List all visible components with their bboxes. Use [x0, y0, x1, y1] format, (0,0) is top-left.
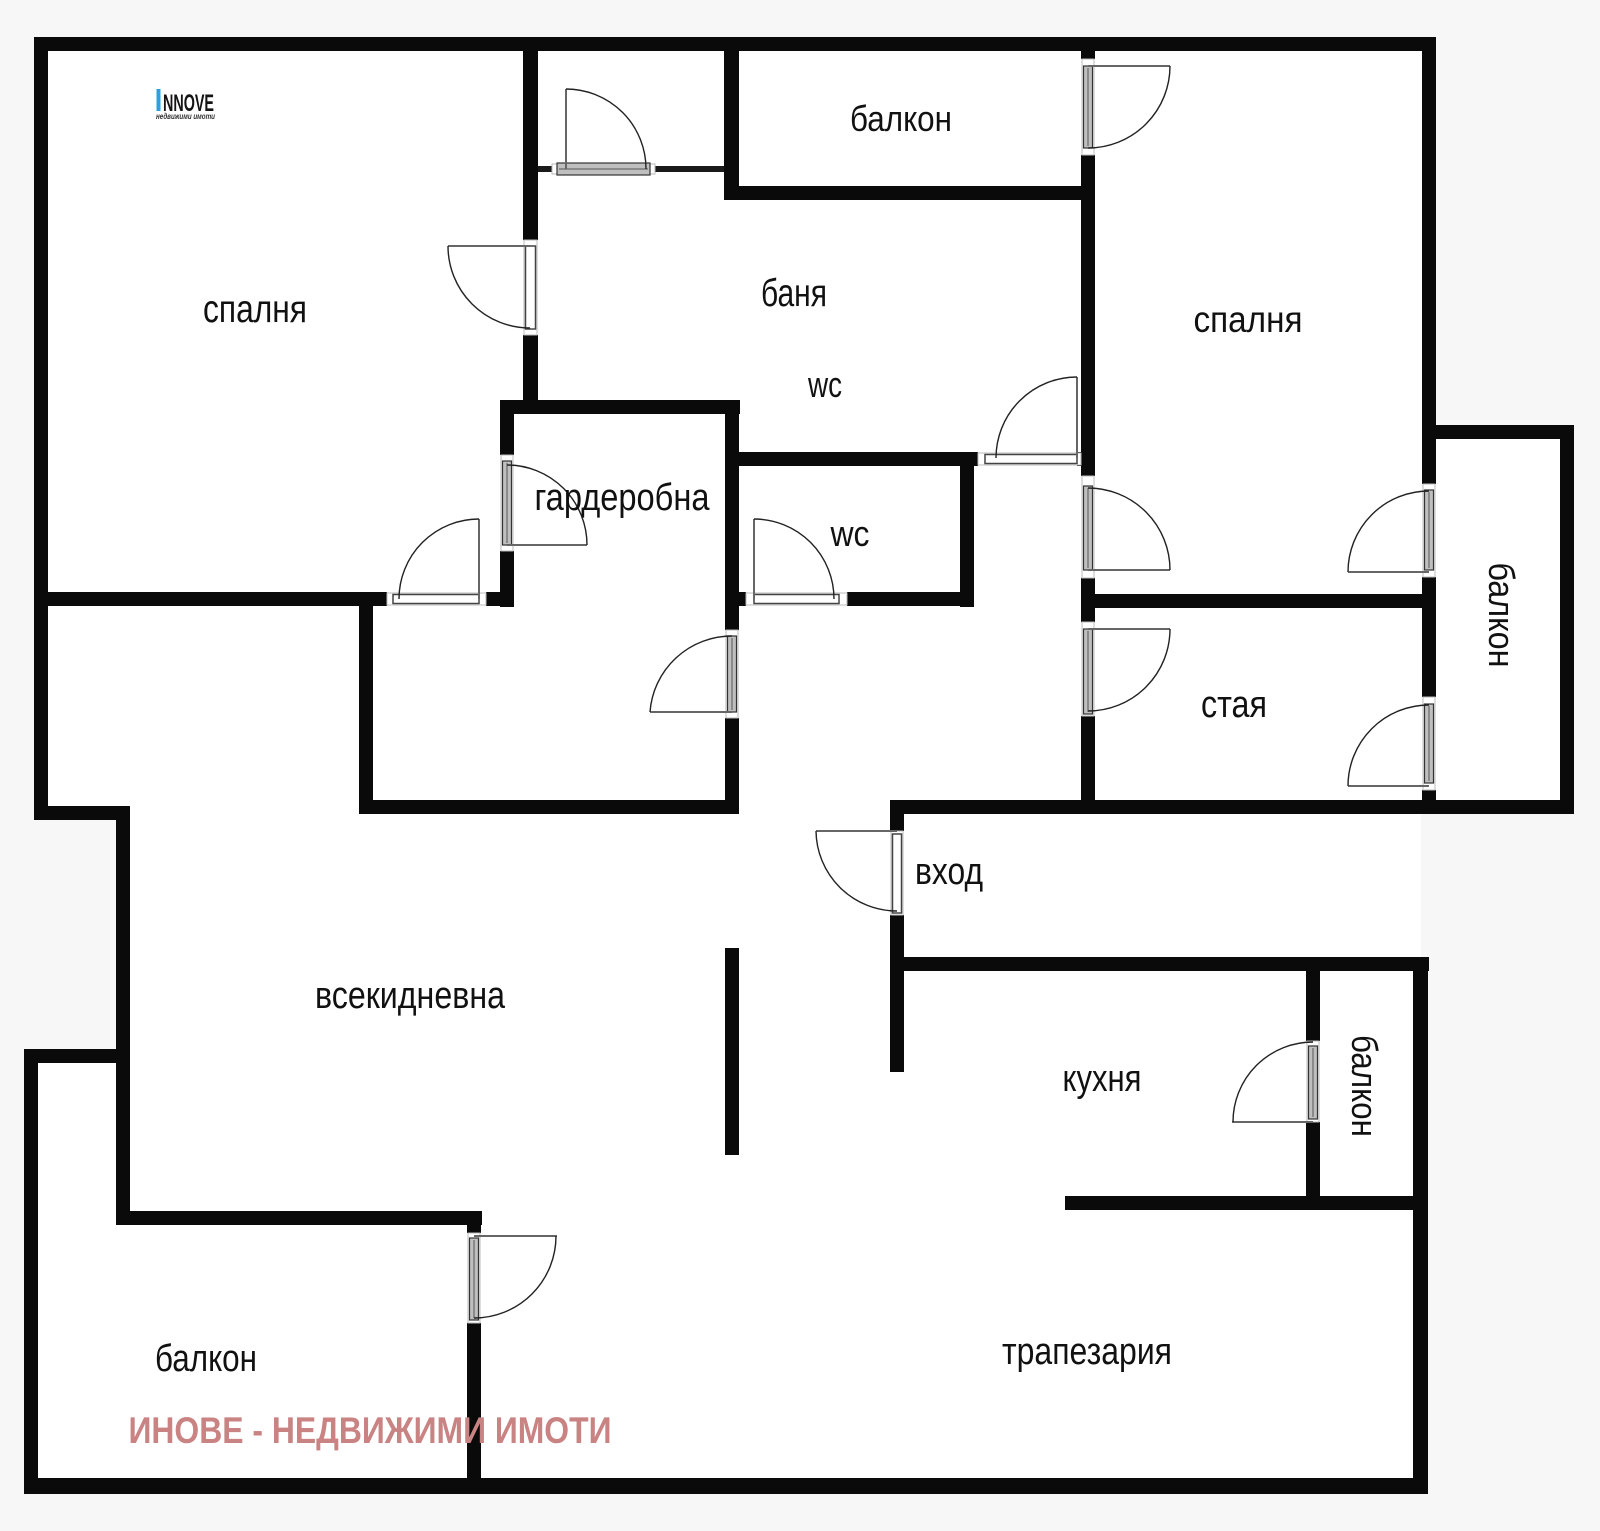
svg-text:спалня: спалня [203, 288, 307, 331]
svg-text:балкон: балкон [1344, 1035, 1385, 1137]
svg-text:трапезария: трапезария [1002, 1331, 1172, 1373]
svg-text:стая: стая [1201, 684, 1267, 726]
svg-text:wc: wc [807, 364, 842, 405]
svg-text:кухня: кухня [1063, 1058, 1142, 1100]
svg-text:всекидневна: всекидневна [315, 975, 506, 1017]
svg-text:недвижими имоти: недвижими имоти [156, 112, 215, 121]
svg-text:балкон: балкон [850, 98, 952, 139]
svg-text:балкон: балкон [155, 1338, 257, 1380]
svg-text:балкон: балкон [1481, 563, 1522, 668]
svg-text:ИНОВЕ - НЕДВИЖИМИ ИМОТИ: ИНОВЕ - НЕДВИЖИМИ ИМОТИ [129, 1410, 612, 1451]
svg-text:wc: wc [830, 513, 870, 554]
svg-text:баня: баня [761, 272, 827, 315]
svg-text:гардеробна: гардеробна [535, 477, 711, 519]
svg-text:спалня: спалня [1194, 299, 1303, 340]
svg-text:вход: вход [915, 851, 983, 893]
